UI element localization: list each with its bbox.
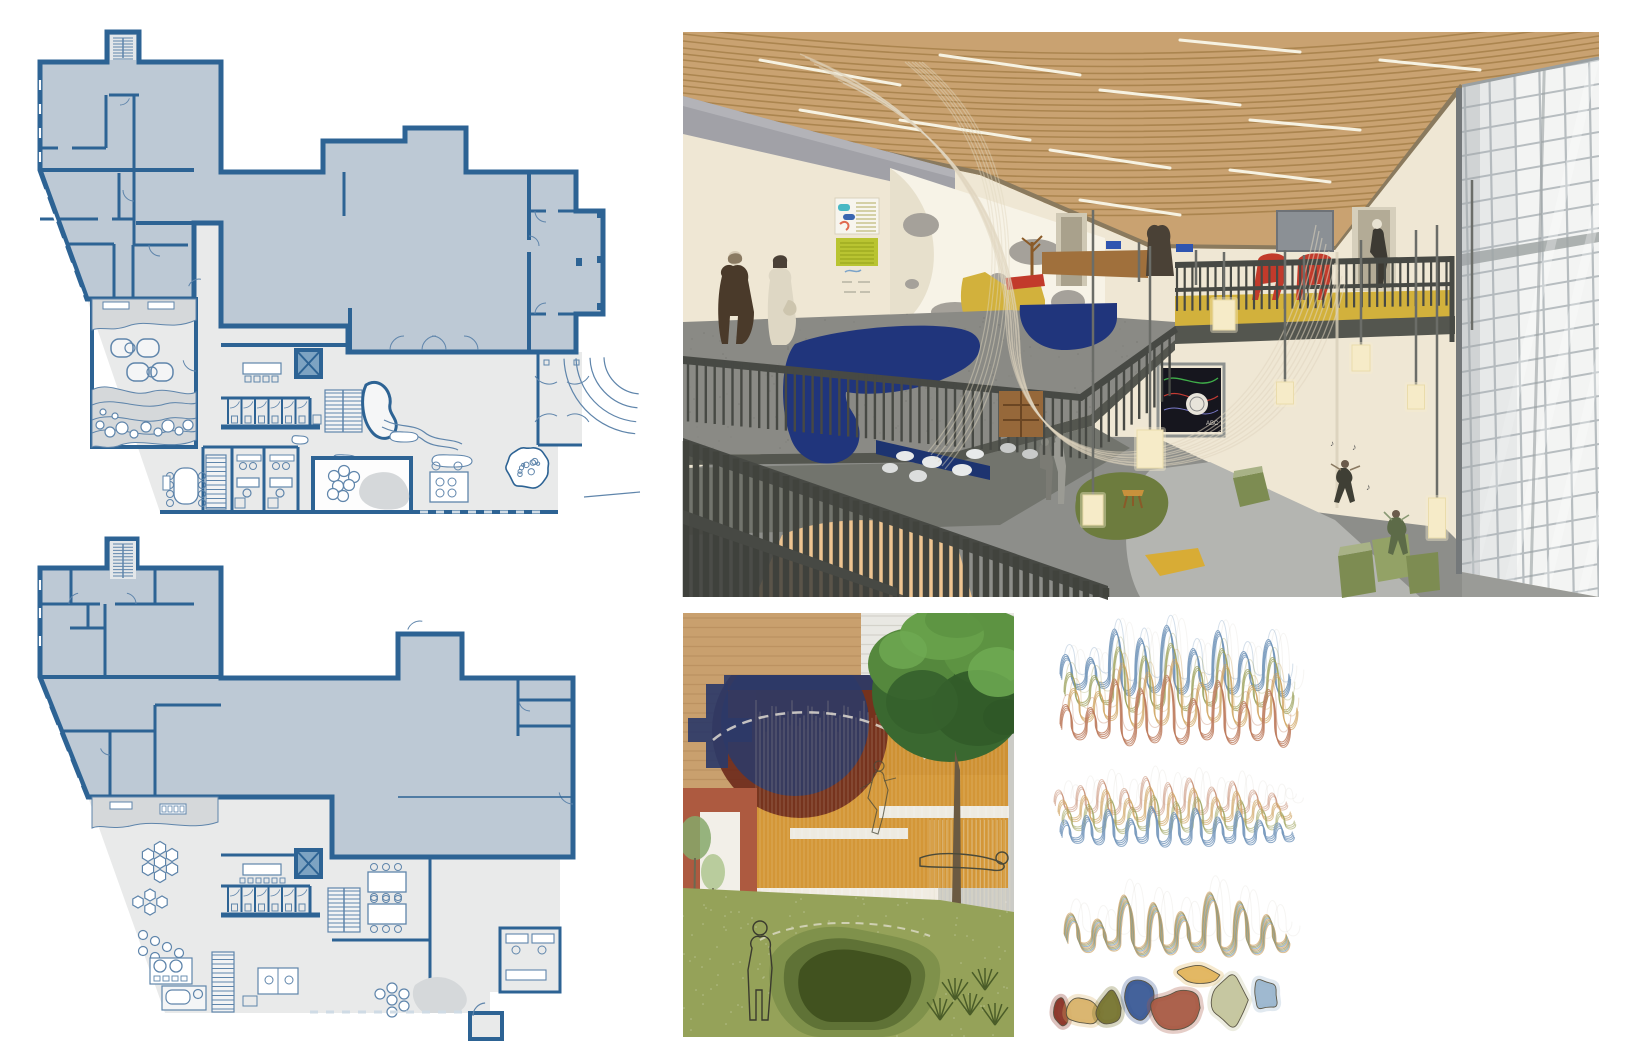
svg-text:♪: ♪ — [1366, 482, 1371, 492]
svg-text:♪: ♪ — [1352, 442, 1357, 452]
svg-text:♪: ♪ — [1330, 439, 1334, 448]
